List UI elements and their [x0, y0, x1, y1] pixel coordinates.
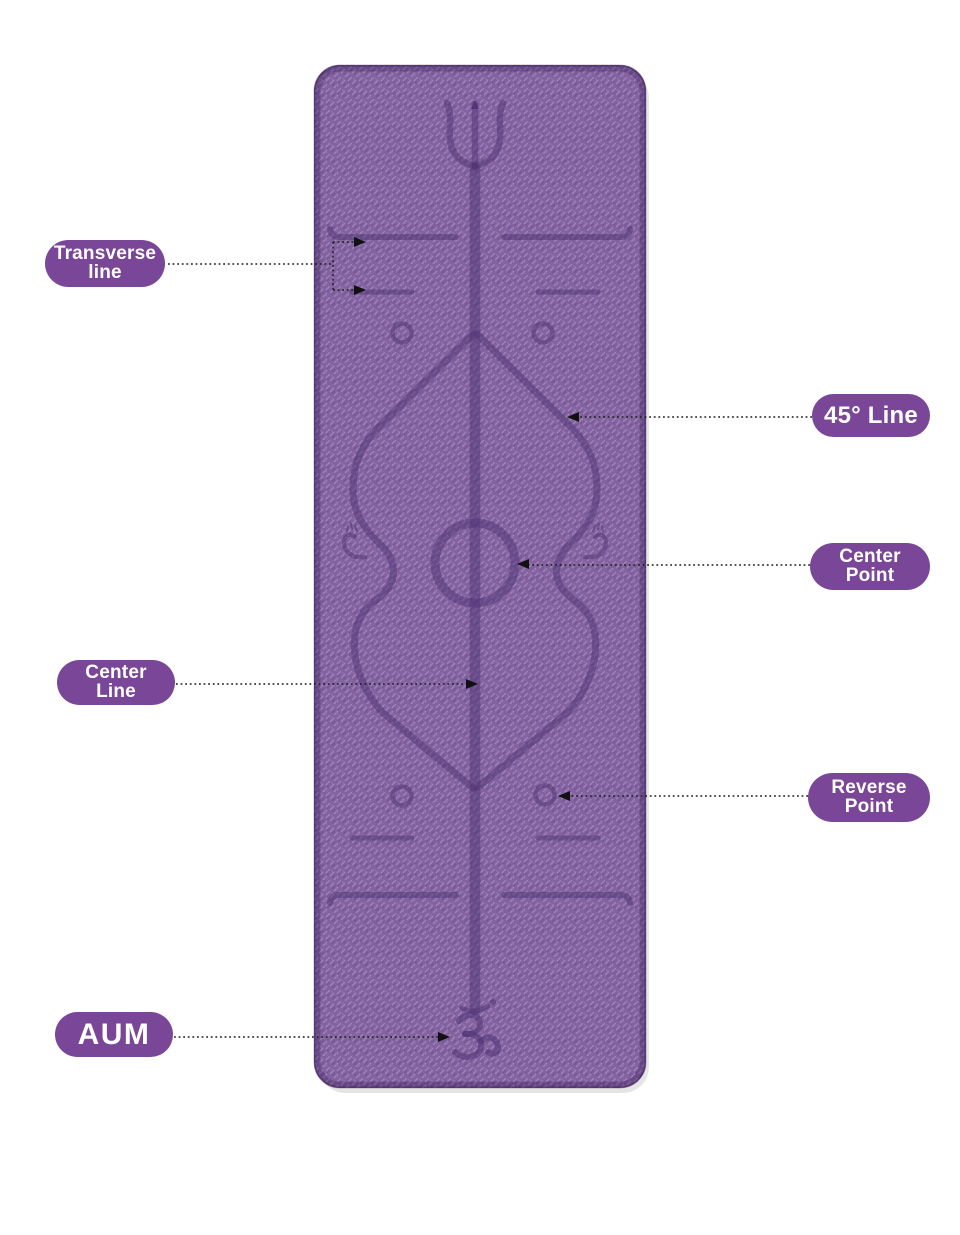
label-text: 45° Line — [824, 404, 918, 428]
label-text: Center — [839, 548, 900, 567]
label-center-line: Center Line — [57, 660, 175, 705]
label-center-point: Center Point — [810, 543, 930, 590]
label-text: Reverse — [831, 779, 906, 798]
label-text: line — [88, 264, 122, 283]
label-text: Transverse — [54, 245, 156, 264]
label-text: AUM — [78, 1020, 151, 1049]
product-diagram: Transverse line 45° Line Center Point Ce… — [0, 0, 960, 1235]
label-text: Point — [845, 798, 894, 817]
label-45-line: 45° Line — [812, 394, 930, 437]
label-reverse-point: Reverse Point — [808, 773, 930, 822]
label-text: Center — [85, 664, 146, 683]
label-text: Point — [846, 567, 895, 586]
label-aum: AUM — [55, 1012, 173, 1057]
label-text: Line — [96, 683, 136, 702]
label-transverse-line: Transverse line — [45, 240, 165, 287]
